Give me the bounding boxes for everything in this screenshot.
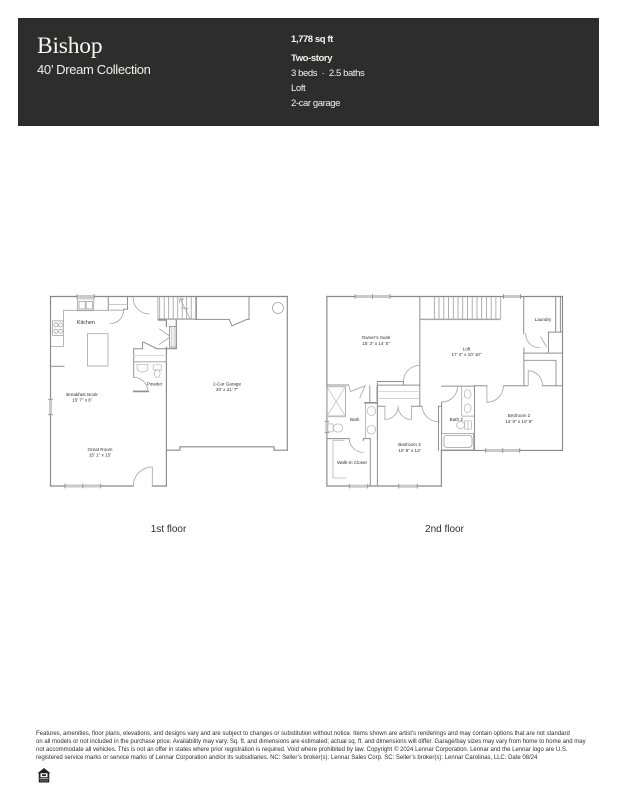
svg-text:14’ 9” x 10’ 8”: 14’ 9” x 10’ 8” (505, 419, 533, 424)
svg-text:Bath: Bath (350, 417, 360, 422)
svg-text:Walk-In Closet: Walk-In Closet (337, 460, 367, 465)
svg-text:Loft: Loft (463, 346, 471, 351)
svg-text:15’ 7” x 8’: 15’ 7” x 8’ (72, 398, 92, 403)
svg-text:Bedroom 3: Bedroom 3 (398, 442, 421, 447)
svg-text:Owner’s Suite: Owner’s Suite (362, 335, 391, 340)
svg-text:Breakfast Nook: Breakfast Nook (66, 392, 98, 397)
svg-text:15’ 1” x 15’: 15’ 1” x 15’ (89, 453, 111, 458)
svg-text:Kitchen: Kitchen (77, 320, 95, 326)
svg-text:10’ 8” x 13’: 10’ 8” x 13’ (398, 448, 420, 453)
svg-text:Bath 2: Bath 2 (450, 417, 464, 422)
svg-text:Great Room: Great Room (87, 447, 112, 452)
svg-text:Powder: Powder (147, 382, 163, 387)
svg-text:17’ 4” x 10’ 10”: 17’ 4” x 10’ 10” (451, 352, 482, 357)
svg-text:15’ 3” x 14’ 5”: 15’ 3” x 14’ 5” (362, 341, 390, 346)
svg-text:20’ x 21’ 7”: 20’ x 21’ 7” (216, 387, 239, 392)
svg-text:Bedroom 2: Bedroom 2 (508, 413, 531, 418)
svg-text:Laundry: Laundry (535, 317, 552, 322)
svg-text:2-Car Garage: 2-Car Garage (213, 381, 242, 386)
